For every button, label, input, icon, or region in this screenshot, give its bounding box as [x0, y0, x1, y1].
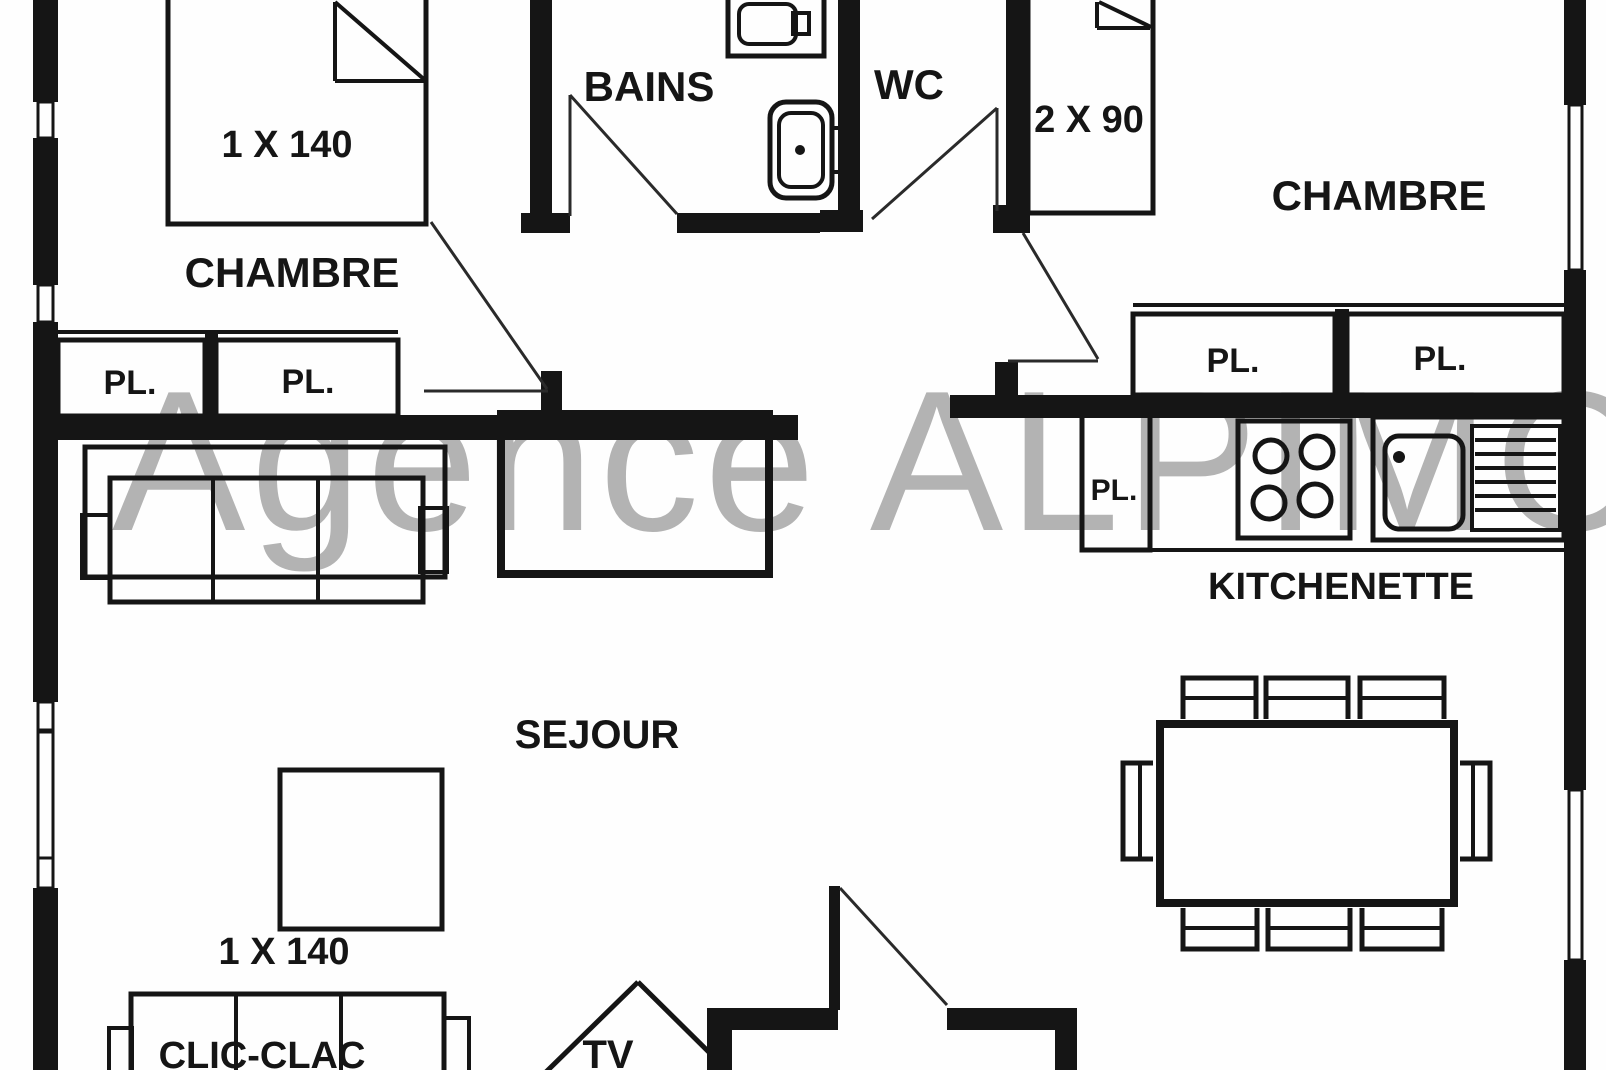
floor-plan: Agence ALPIMO — [0, 0, 1606, 1070]
bottom-alcove-walls — [707, 886, 1077, 1070]
sofa-bed-label: CLIC-CLAC — [159, 1035, 366, 1070]
door-swing-wc — [872, 108, 997, 219]
room-label-chambre-right: CHAMBRE — [1272, 172, 1487, 219]
closet-row-right — [1133, 305, 1564, 395]
sofa-bed-size-label: 1 X 140 — [219, 931, 350, 973]
stove-icon — [1238, 421, 1350, 538]
sink-icon — [1373, 417, 1564, 540]
closet-label: PL. — [282, 363, 335, 401]
tv-icon — [546, 982, 729, 1070]
bed-double-label: 1 X 140 — [222, 124, 353, 166]
room-label-kitchenette: KITCHENETTE — [1208, 566, 1474, 608]
room-label-sejour: SEJOUR — [515, 713, 680, 757]
room-label-wc: WC — [874, 61, 944, 108]
closet-label: PL. — [104, 364, 157, 402]
door-swing-bains — [570, 95, 677, 216]
dining-table-icon — [1160, 724, 1454, 903]
closet-label: PL. — [1414, 340, 1467, 378]
dining-chairs — [1123, 678, 1490, 949]
door-swing-chambre-right — [1008, 233, 1098, 361]
closet-label: PL. — [1207, 342, 1260, 380]
bathtub-icon — [728, 0, 824, 56]
balcony-door-swing — [840, 888, 947, 1005]
tv-label: TV — [582, 1033, 633, 1070]
coffee-table-icon — [280, 770, 442, 929]
bed-double-icon — [168, 0, 426, 224]
washbasin-icon — [770, 102, 840, 198]
floor-plan-drawing: 1 X 140 CHAMBRE PL. PL. BAINS WC — [0, 0, 1606, 1070]
closet-label: PL. — [1091, 474, 1138, 507]
left-wall — [33, 0, 58, 1070]
room-label-chambre-left: CHAMBRE — [185, 249, 400, 296]
door-swing-chambre-left — [424, 222, 548, 391]
sofa-icon — [82, 447, 447, 602]
room-label-bains: BAINS — [584, 63, 715, 110]
bed-twin-label: 2 X 90 — [1034, 99, 1144, 141]
balcony-door-leaf — [829, 886, 840, 1010]
